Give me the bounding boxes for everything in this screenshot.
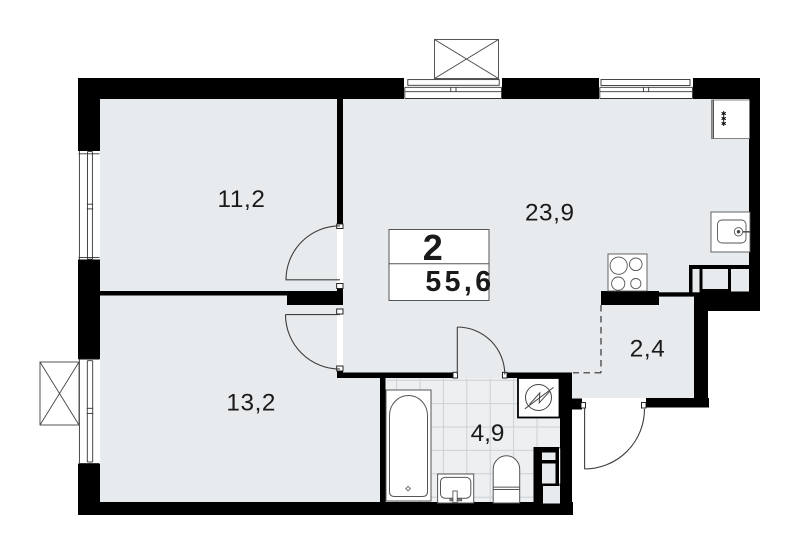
svg-text:2: 2 <box>423 227 443 268</box>
svg-text:11,2: 11,2 <box>218 186 266 213</box>
svg-text:23,9: 23,9 <box>525 199 575 226</box>
svg-text:13,2: 13,2 <box>226 390 276 417</box>
svg-text:2,4: 2,4 <box>630 336 666 363</box>
svg-text:55,6: 55,6 <box>425 266 494 298</box>
svg-text:4,9: 4,9 <box>471 420 505 447</box>
